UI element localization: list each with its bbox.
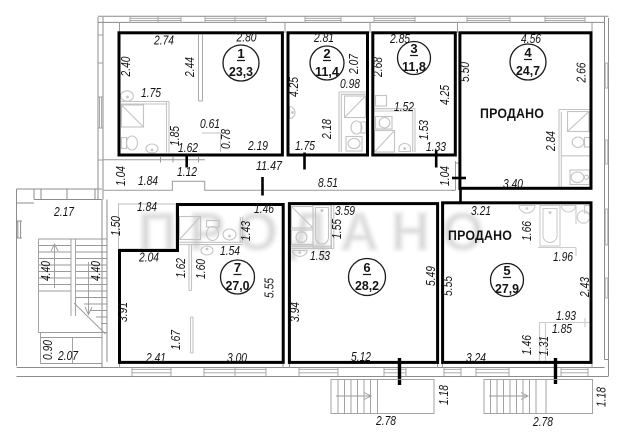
svg-text:3.40: 3.40 <box>503 176 524 191</box>
svg-text:1: 1 <box>237 46 244 61</box>
svg-text:3.24: 3.24 <box>466 350 486 365</box>
svg-text:1.66: 1.66 <box>519 220 534 241</box>
svg-text:5.55: 5.55 <box>440 275 455 296</box>
svg-text:1.62: 1.62 <box>178 140 199 155</box>
svg-text:2.84: 2.84 <box>543 131 558 152</box>
svg-text:1.53: 1.53 <box>416 119 431 140</box>
svg-text:1.75: 1.75 <box>295 138 316 153</box>
svg-text:3.94: 3.94 <box>287 302 302 322</box>
svg-text:2.41: 2.41 <box>145 350 166 365</box>
svg-text:2.68: 2.68 <box>370 56 385 77</box>
svg-text:1.33: 1.33 <box>426 139 447 154</box>
svg-text:2.07: 2.07 <box>57 348 78 363</box>
svg-text:3.91: 3.91 <box>115 302 130 322</box>
svg-text:4.25: 4.25 <box>286 76 301 97</box>
svg-text:7: 7 <box>234 260 241 275</box>
svg-text:1.84: 1.84 <box>138 173 158 188</box>
svg-text:2.85: 2.85 <box>389 31 410 46</box>
svg-text:2.19: 2.19 <box>247 138 268 153</box>
svg-text:4.40: 4.40 <box>88 260 103 281</box>
svg-text:1.67: 1.67 <box>168 329 183 350</box>
svg-text:0.98: 0.98 <box>340 76 361 91</box>
svg-text:5.49: 5.49 <box>423 266 438 286</box>
svg-text:1.52: 1.52 <box>394 99 415 114</box>
svg-text:4.56: 4.56 <box>521 31 542 46</box>
svg-text:5.12: 5.12 <box>351 349 372 364</box>
svg-text:24,7: 24,7 <box>516 63 540 78</box>
svg-text:3.21: 3.21 <box>471 203 491 218</box>
svg-text:4: 4 <box>524 45 532 60</box>
svg-text:2.78: 2.78 <box>375 413 396 428</box>
svg-text:1.62: 1.62 <box>173 257 188 278</box>
svg-text:1.46: 1.46 <box>519 334 534 355</box>
svg-text:0.78: 0.78 <box>218 128 233 149</box>
svg-text:2.04: 2.04 <box>138 250 159 265</box>
svg-text:2.74: 2.74 <box>153 33 174 48</box>
svg-text:0.90: 0.90 <box>40 339 55 360</box>
svg-text:27,0: 27,0 <box>226 278 250 293</box>
svg-text:1.43: 1.43 <box>238 220 253 241</box>
svg-text:1.96: 1.96 <box>553 249 574 264</box>
svg-text:27,9: 27,9 <box>495 281 519 296</box>
svg-text:5: 5 <box>503 263 510 278</box>
svg-text:28,2: 28,2 <box>355 278 379 293</box>
svg-text:0.61: 0.61 <box>200 116 220 131</box>
svg-text:1.04: 1.04 <box>113 166 128 186</box>
svg-text:2.07: 2.07 <box>346 53 361 74</box>
svg-text:1.84: 1.84 <box>137 199 157 214</box>
svg-text:2.80: 2.80 <box>236 30 257 45</box>
svg-text:2: 2 <box>323 46 330 61</box>
svg-text:23,3: 23,3 <box>229 64 253 79</box>
svg-text:1.60: 1.60 <box>193 258 208 279</box>
svg-text:5.55: 5.55 <box>262 277 277 298</box>
svg-text:1.54: 1.54 <box>220 243 240 258</box>
svg-text:1.55: 1.55 <box>329 218 344 239</box>
svg-text:2.18: 2.18 <box>319 118 334 139</box>
svg-text:1.12: 1.12 <box>177 164 198 179</box>
svg-text:1.46: 1.46 <box>254 201 275 216</box>
svg-text:3.59: 3.59 <box>335 203 355 218</box>
svg-text:1.04: 1.04 <box>437 166 452 186</box>
svg-text:1.18: 1.18 <box>594 386 609 407</box>
svg-text:5.50: 5.50 <box>457 61 472 82</box>
svg-text:4.25: 4.25 <box>437 84 452 105</box>
svg-text:8.51: 8.51 <box>318 175 338 190</box>
svg-text:2.78: 2.78 <box>532 414 553 429</box>
svg-text:2.43: 2.43 <box>577 276 592 297</box>
svg-text:1.53: 1.53 <box>310 248 331 263</box>
svg-text:2.40: 2.40 <box>118 56 133 77</box>
svg-text:2.17: 2.17 <box>53 204 74 219</box>
svg-text:3: 3 <box>410 41 417 56</box>
svg-text:ПРОДАНО: ПРОДАНО <box>448 228 512 243</box>
svg-text:1.85: 1.85 <box>552 321 573 336</box>
svg-text:2.44: 2.44 <box>182 57 197 78</box>
svg-text:1.18: 1.18 <box>436 384 451 405</box>
svg-text:1.50: 1.50 <box>108 215 123 236</box>
svg-text:ПРОДАНО: ПРОДАНО <box>480 106 544 121</box>
svg-text:2.66: 2.66 <box>574 62 589 83</box>
svg-text:11,8: 11,8 <box>402 59 426 74</box>
svg-text:1.31: 1.31 <box>536 336 551 356</box>
svg-text:2.81: 2.81 <box>313 30 334 45</box>
svg-text:11,4: 11,4 <box>315 64 340 79</box>
svg-text:11.47: 11.47 <box>256 158 283 173</box>
svg-text:4.40: 4.40 <box>38 260 53 281</box>
svg-text:3.00: 3.00 <box>227 350 248 365</box>
svg-text:6: 6 <box>363 260 370 275</box>
svg-text:1.75: 1.75 <box>141 85 162 100</box>
